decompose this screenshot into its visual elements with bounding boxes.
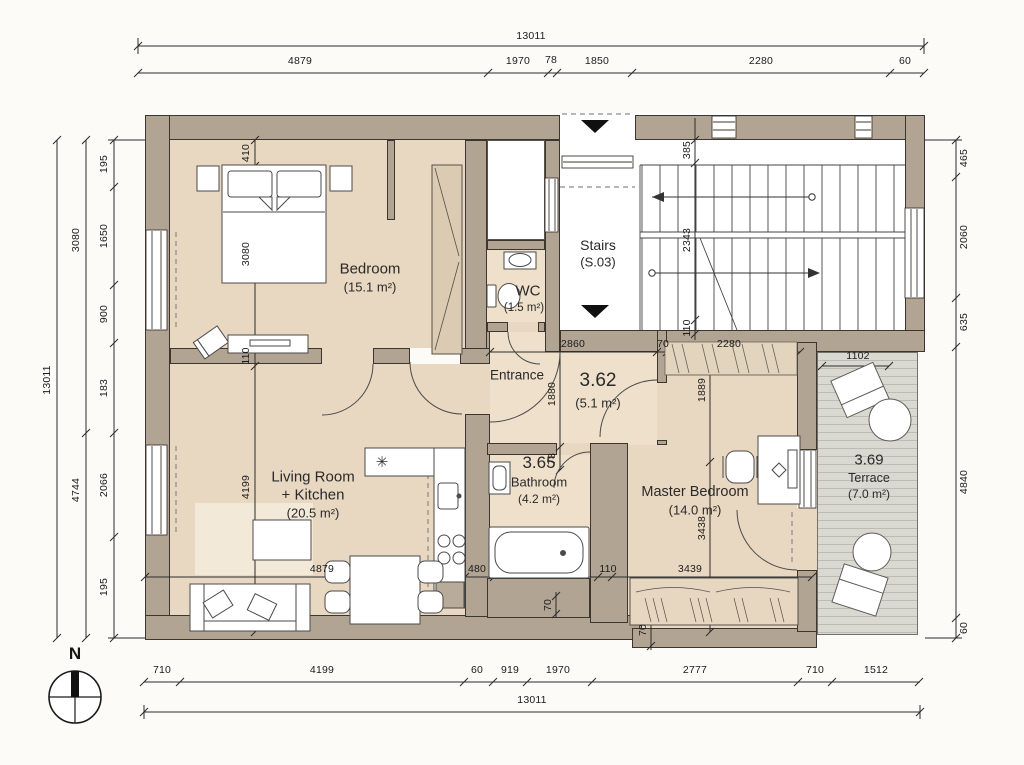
desk-chair — [723, 451, 757, 483]
wc-sink — [504, 252, 536, 269]
bedroom-chair — [193, 326, 228, 359]
bathroom-label: Bathroom — [511, 475, 567, 490]
dim-label: 1880 — [546, 382, 558, 406]
dim-label: 4879 — [288, 55, 312, 67]
sofa — [190, 584, 310, 631]
dim-label: 70 — [542, 599, 554, 611]
dim-label: 3080 — [70, 228, 82, 252]
dim-label: 1970 — [506, 55, 530, 67]
terrace-table-bottom — [853, 533, 891, 571]
dim-label: 385 — [681, 141, 693, 159]
coffee-table — [253, 520, 311, 560]
dim-label: 4744 — [70, 478, 82, 502]
dim-label: 3438 — [696, 516, 708, 540]
plan-linework — [0, 0, 1024, 765]
dim-label: 13011 — [41, 365, 53, 394]
living-label-1: Living Room — [271, 469, 354, 486]
dim-label: 60 — [471, 664, 483, 676]
dim-label: 3439 — [678, 563, 702, 575]
master-label: Master Bedroom — [641, 484, 748, 500]
dim-label: 70 — [637, 624, 649, 636]
master-bed — [630, 578, 798, 625]
hob-symbol-icon: ✳ — [376, 453, 389, 471]
entrance-label: Entrance — [490, 368, 544, 383]
dim-label: 480 — [468, 563, 486, 575]
dim-label: 60 — [958, 622, 970, 634]
dim-label: 183 — [98, 379, 110, 397]
stairs-direction-arrows — [649, 192, 820, 278]
dim-label: 710 — [806, 664, 824, 676]
terrace-area: (7.0 m²) — [848, 487, 890, 501]
terrace-table-top — [869, 399, 911, 441]
north-compass-icon — [49, 671, 101, 723]
entrance-area: (5.1 m²) — [575, 396, 621, 411]
terrace-label: Terrace — [848, 471, 890, 485]
dim-label: 195 — [98, 578, 110, 596]
dim-label: 13011 — [516, 30, 545, 42]
stairs-label: Stairs — [580, 237, 616, 253]
entrance-number: 3.62 — [580, 370, 617, 392]
dim-label: 110 — [681, 319, 693, 336]
dim-label: 4199 — [240, 475, 252, 499]
dim-label: 1650 — [98, 224, 110, 248]
master-area: (14.0 m²) — [669, 503, 722, 518]
entry-arrow-icon-bottom — [581, 305, 609, 318]
dim-label: 3080 — [240, 242, 252, 266]
dining-table — [350, 556, 420, 624]
dim-label: 110 — [240, 347, 252, 364]
dim-label: 2280 — [749, 55, 773, 67]
floor-plan: 13011 4879 1970 78 1850 2280 60 710 4199… — [0, 0, 1024, 765]
dim-label: 1102 — [846, 350, 869, 362]
bedroom-label: Bedroom — [340, 261, 401, 278]
entry-arrow-icon-top — [581, 120, 609, 133]
dim-label: 70 — [657, 338, 669, 350]
living-label-2: + Kitchen — [282, 487, 345, 504]
bathroom-number: 3.65 — [522, 453, 555, 473]
dim-label: 2060 — [958, 225, 970, 249]
dim-label: 1889 — [696, 378, 708, 402]
bathroom-area: (4.2 m²) — [518, 492, 560, 506]
dim-label: 4199 — [310, 664, 334, 676]
stairs-code: (S.03) — [580, 255, 615, 270]
dim-label: 1970 — [546, 664, 570, 676]
wc-label: WC — [516, 283, 541, 300]
bedroom-area: (15.1 m²) — [344, 280, 397, 295]
bathtub — [489, 527, 589, 578]
kitchen-sink — [438, 483, 461, 509]
dim-label: 78 — [545, 54, 557, 66]
bedroom-wardrobe — [432, 165, 462, 354]
dim-label: 1512 — [864, 664, 888, 676]
terrace-chair-bottom — [832, 564, 888, 616]
desk — [758, 436, 800, 504]
dim-label: 2343 — [681, 228, 693, 252]
dim-label: 2860 — [561, 338, 585, 350]
north-label: N — [69, 644, 81, 664]
bed — [222, 165, 326, 283]
dim-label: 465 — [958, 149, 970, 167]
dim-label: 710 — [153, 664, 171, 676]
bathroom-basin — [489, 462, 510, 494]
dim-label: 110 — [599, 563, 616, 575]
dim-label: 60 — [899, 55, 911, 67]
dim-label: 4879 — [310, 563, 334, 575]
dim-label: 1850 — [585, 55, 609, 67]
dim-label: 2066 — [98, 473, 110, 497]
wc-area: (1.5 m²) — [504, 302, 544, 314]
dim-label: 2777 — [683, 664, 707, 676]
dim-label: 410 — [240, 144, 252, 162]
stairs-treads — [640, 165, 905, 330]
terrace-number: 3.69 — [854, 452, 883, 469]
dim-label: 2280 — [717, 338, 741, 350]
dim-label: 13011 — [517, 694, 546, 706]
dim-label: 195 — [98, 155, 110, 173]
living-area: (20.5 m²) — [287, 506, 340, 521]
dim-label: 635 — [958, 313, 970, 331]
dim-label: 4840 — [958, 470, 970, 494]
dim-label: 900 — [98, 305, 110, 323]
dim-label: 919 — [501, 664, 519, 676]
